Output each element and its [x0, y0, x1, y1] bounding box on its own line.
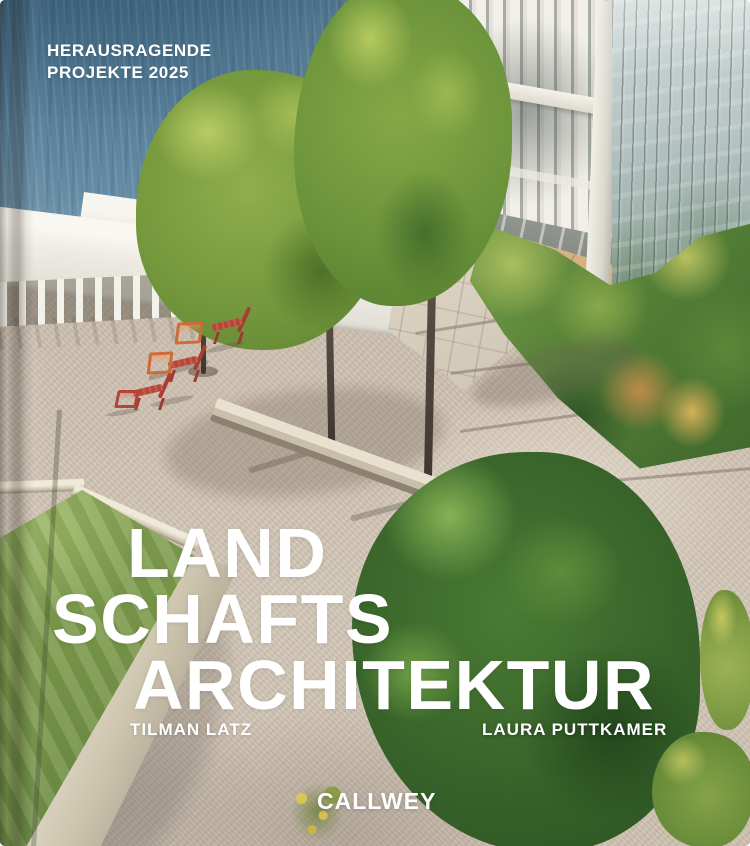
series-label: HERAUSRAGENDE PROJEKTE 2025 — [47, 40, 212, 84]
book-cover: HERAUSRAGENDE PROJEKTE 2025 LAND SCHAFTS… — [0, 0, 750, 846]
book-spine-crease — [0, 0, 48, 846]
title-line-2: SCHAFTS — [52, 584, 393, 654]
publisher-logo: CALLWEY — [317, 790, 436, 813]
chair-legs — [134, 398, 165, 410]
author-name-right: LAURA PUTTKAMER — [482, 721, 667, 738]
chair-legs — [213, 332, 244, 344]
red-stool — [114, 390, 140, 408]
title-line-1: LAND — [127, 518, 327, 588]
chair-legs — [169, 370, 200, 382]
red-chair — [168, 344, 204, 384]
orange-side-table — [147, 351, 174, 374]
author-name-left: TILMAN LATZ — [130, 721, 252, 738]
right-edge-bush — [700, 590, 750, 730]
title-line-3: ARCHITEKTUR — [133, 650, 655, 720]
corner-bush — [652, 732, 750, 846]
series-line-2: PROJEKTE 2025 — [47, 62, 212, 84]
orange-side-table — [175, 321, 204, 344]
red-chair — [212, 306, 248, 346]
series-line-1: HERAUSRAGENDE — [47, 40, 212, 62]
